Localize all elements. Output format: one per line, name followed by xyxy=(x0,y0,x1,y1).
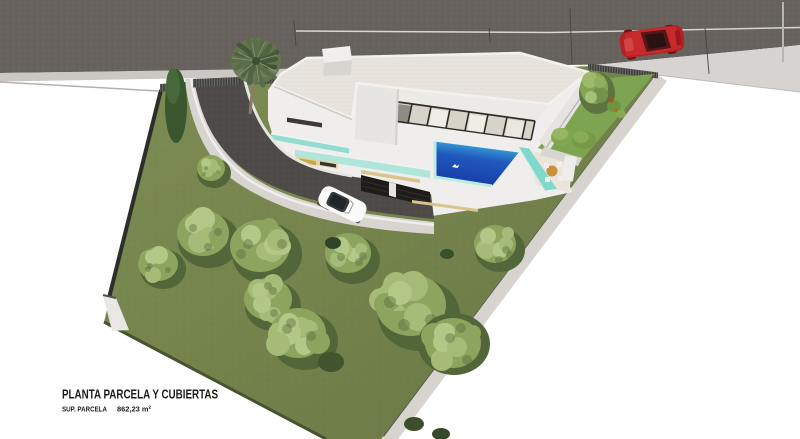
svg-text:PLANTA PARCELA Y CUBIERTAS: PLANTA PARCELA Y CUBIERTAS xyxy=(62,388,218,402)
svg-text:SUP. PARCELA: SUP. PARCELA xyxy=(62,405,107,414)
svg-text:862,23 m²: 862,23 m² xyxy=(117,405,151,414)
